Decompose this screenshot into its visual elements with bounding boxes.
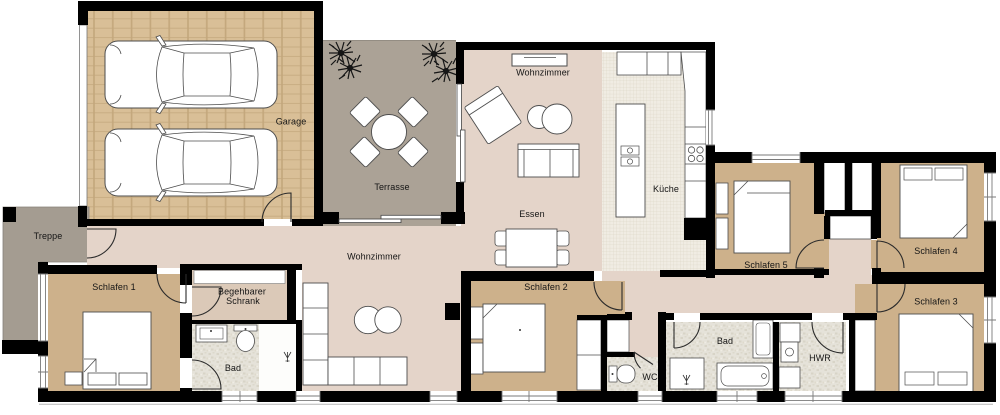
svg-text:Begehbarer: Begehbarer <box>218 287 266 297</box>
svg-text:Schlafen 5: Schlafen 5 <box>744 260 788 270</box>
svg-text:Terrasse: Terrasse <box>374 182 409 192</box>
svg-text:Schlafen 4: Schlafen 4 <box>914 246 958 256</box>
svg-text:Garage: Garage <box>276 117 307 127</box>
svg-text:Schlafen 3: Schlafen 3 <box>914 297 958 307</box>
svg-text:HWR: HWR <box>809 353 831 363</box>
svg-text:Essen: Essen <box>519 209 545 219</box>
svg-text:Schlafen 1: Schlafen 1 <box>92 282 136 292</box>
svg-text:Küche: Küche <box>653 184 679 194</box>
svg-text:Treppe: Treppe <box>34 231 63 241</box>
svg-text:Wohnzimmer: Wohnzimmer <box>516 68 570 78</box>
svg-text:Schrank: Schrank <box>226 296 260 306</box>
svg-text:Wohnzimmer: Wohnzimmer <box>347 252 401 262</box>
svg-text:WC: WC <box>642 372 658 382</box>
svg-text:Bad: Bad <box>225 363 241 373</box>
svg-text:Schlafen 2: Schlafen 2 <box>524 282 568 292</box>
svg-text:Bad: Bad <box>717 336 733 346</box>
